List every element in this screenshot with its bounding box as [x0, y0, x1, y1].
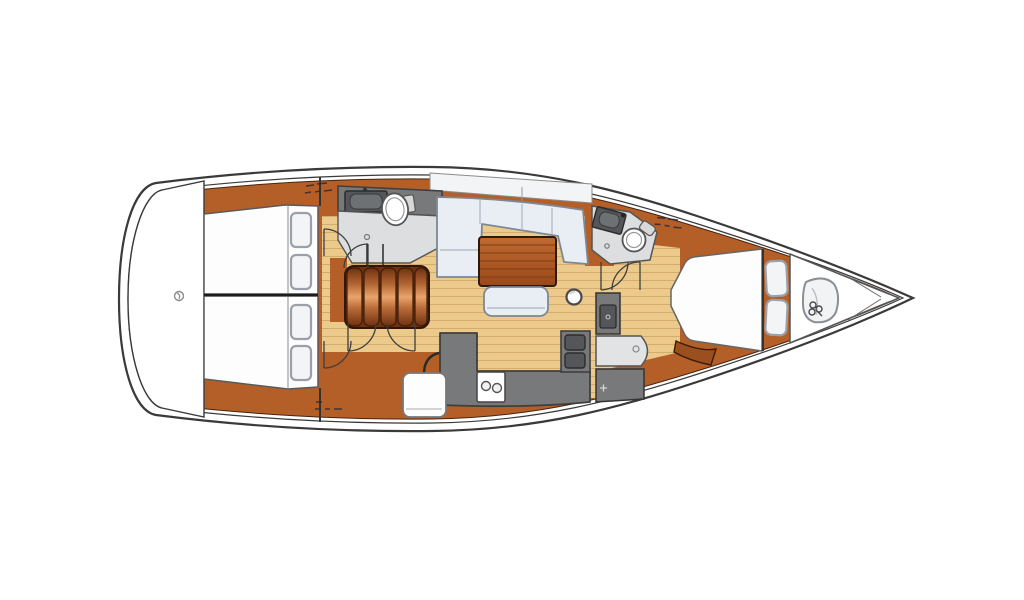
yacht-floorplan	[0, 0, 1024, 600]
sink-basin	[565, 353, 585, 368]
stove-burner-icon	[482, 382, 491, 391]
sink-basin	[565, 335, 585, 350]
sail-bag	[803, 278, 838, 322]
nav-instrument-icon	[600, 305, 616, 328]
step-slat	[347, 268, 362, 326]
yacht-floorplan-canvas	[0, 0, 1024, 600]
step-slat	[381, 268, 396, 326]
salon-bench	[484, 287, 548, 316]
forepeak-sail-locker	[790, 254, 899, 343]
aft-starboard-seat	[403, 373, 446, 417]
pillow	[291, 255, 311, 289]
aft-sink-faucet-icon	[363, 188, 367, 192]
chart-table	[596, 336, 648, 366]
companionway-steps	[345, 266, 429, 328]
aft-sink-basin	[350, 194, 382, 209]
step-slat	[415, 268, 427, 326]
pillow	[291, 346, 311, 380]
pillow	[291, 213, 311, 247]
step-slat	[364, 268, 379, 326]
aft-head	[338, 186, 442, 266]
step-slat	[398, 268, 413, 326]
pillow	[765, 299, 788, 335]
stove-burner-icon	[493, 384, 502, 393]
v-berth	[671, 249, 762, 351]
pillow	[765, 260, 788, 296]
pillow	[291, 305, 311, 339]
